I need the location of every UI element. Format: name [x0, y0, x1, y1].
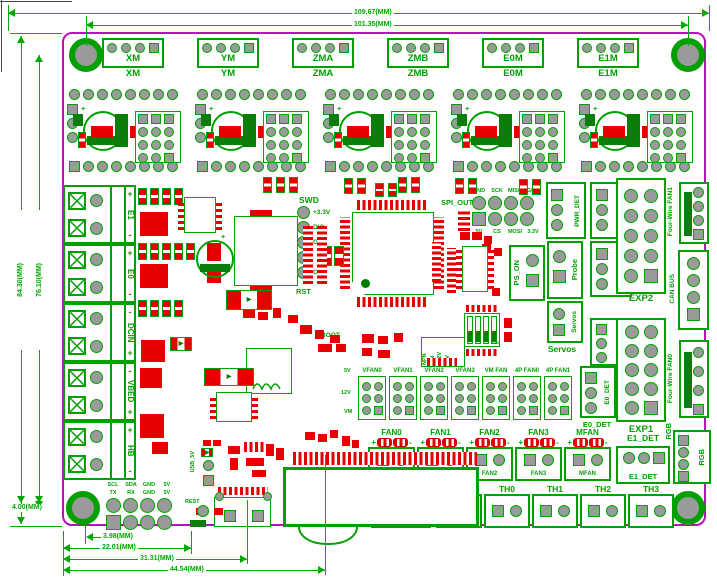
component — [150, 243, 159, 260]
jumper-label: VFAN1 — [389, 366, 417, 376]
pin-pad-round — [535, 140, 545, 150]
pin-pad-square — [164, 114, 174, 124]
motor-connector: ZMA ZMA — [292, 38, 354, 79]
pin-pad-round — [230, 43, 240, 53]
pin-pad-square — [292, 153, 302, 163]
motor-pins — [107, 43, 159, 53]
micro-usb-pins — [218, 487, 268, 495]
pin-pad-round — [665, 89, 676, 100]
pin-pad-square — [585, 372, 597, 384]
pin-pad-round — [394, 127, 404, 137]
rgb-label: RGB — [665, 423, 673, 440]
pin-pad-round — [526, 254, 539, 267]
pin-pad-round — [537, 89, 548, 100]
pin-pad-round — [453, 89, 464, 100]
pin-pad-square — [197, 161, 208, 172]
component — [252, 510, 264, 522]
pin-pad-square — [420, 153, 430, 163]
component — [197, 89, 306, 100]
dim-arrow — [35, 55, 43, 62]
header-pin-label: RX — [122, 489, 140, 497]
pin-pad-square — [687, 308, 700, 321]
component — [174, 300, 183, 317]
motor-connector: ZMB ZMB — [387, 38, 449, 79]
pin-pad-square — [596, 248, 608, 260]
e1-det-label-inner: E1_DET — [618, 473, 668, 481]
pin-pad-round — [548, 394, 557, 403]
pin-pad-square — [560, 406, 569, 415]
component — [427, 358, 457, 366]
pin-pad-round — [542, 454, 554, 466]
component — [352, 440, 359, 448]
component — [69, 89, 178, 100]
jumper-label: VFAN0 — [358, 366, 386, 376]
fan-voltage-jumpers: VFAN0 VFAN1 VFAN2 VFAN3 — [358, 366, 572, 420]
pin-pad-round — [139, 89, 150, 100]
pin-pad-round — [581, 89, 592, 100]
pin-pad-round — [644, 382, 658, 396]
pin-pad-round — [111, 89, 122, 100]
component — [585, 114, 595, 126]
component — [140, 368, 162, 388]
component — [378, 336, 388, 344]
power-terminal-column: + E1 - + — [63, 185, 136, 480]
i2c-uart-pins — [106, 498, 172, 530]
fan-connector: FAN3 — [515, 447, 562, 481]
pin-pad-round — [323, 132, 334, 143]
pin-pad-round — [596, 219, 608, 231]
screw-terminal-icon — [68, 192, 86, 210]
thermistor-connector: TH2 — [580, 484, 626, 528]
mounting-hole-bottom-left — [66, 491, 100, 525]
terminal-label: - VBED + — [126, 364, 134, 419]
component: + — [81, 105, 85, 113]
jumper-block: VFAN3 — [451, 366, 479, 420]
motor-pins — [487, 43, 539, 53]
pin-pad-round — [596, 338, 607, 349]
fuse-icon — [573, 438, 588, 447]
terminal-pad — [90, 458, 103, 471]
pin-pad-round — [362, 406, 371, 415]
e1-det-connector: E1_DET — [616, 446, 670, 484]
jumper-pins-outline — [389, 376, 417, 420]
pin-pad-round — [651, 89, 662, 100]
pin-pad-square — [693, 229, 704, 240]
pin-pad-round — [678, 459, 689, 470]
jumper-block: VFAN0 — [358, 366, 386, 420]
pin-pad-round — [325, 43, 335, 53]
pin-pad-round — [529, 382, 538, 391]
pin-pad-round — [650, 140, 660, 150]
pin-pad-round — [140, 515, 155, 530]
fuse-icon — [524, 438, 539, 447]
pin-pad-square — [650, 114, 660, 124]
component — [334, 132, 342, 148]
component — [398, 177, 407, 193]
pin-pad-round — [595, 89, 606, 100]
motor-label-outer: ZMA — [313, 68, 334, 79]
pin-pad-round — [551, 219, 563, 231]
fan-label-inner: FAN2 — [482, 471, 497, 478]
pin-pad-round — [279, 153, 289, 163]
pin-pad-round — [609, 89, 620, 100]
header-pin-label: 5V — [158, 481, 176, 489]
screw-terminal-icon — [68, 337, 86, 355]
pin-pad-round — [517, 394, 526, 403]
e1-det-pins — [623, 452, 665, 464]
pin-pad-square — [540, 505, 552, 517]
dim-width-inner: 101.35(MM) — [352, 21, 394, 29]
pin-pad-round — [585, 387, 597, 399]
component — [252, 470, 266, 477]
component — [219, 126, 241, 138]
pin-pad-round — [606, 505, 618, 517]
pin-pad-round — [339, 89, 350, 100]
screw-terminal-block: + E0 - — [63, 244, 136, 303]
stepper-driver-sockets: +++++ — [66, 88, 694, 173]
component — [504, 332, 512, 342]
dip-on-label: ON — [492, 341, 499, 346]
pin-pad-square — [573, 454, 585, 466]
jumper-block: VFAN2 — [420, 366, 448, 420]
pin-pad-round — [436, 394, 445, 403]
component — [138, 188, 147, 205]
pin-pad-square — [548, 114, 558, 124]
screw-terminal-screws — [65, 364, 110, 419]
component — [342, 436, 350, 446]
spi-pin-label: CS — [488, 228, 506, 236]
component — [581, 89, 690, 100]
pin-pad-round — [195, 132, 206, 143]
pin-pad-round — [297, 43, 307, 53]
thermistor-connector: TH1 — [532, 484, 578, 528]
pin-pad-round — [83, 161, 94, 172]
thermistor-pins — [588, 505, 618, 517]
terminal-pad — [90, 371, 103, 384]
fan-plus-sign: + — [567, 438, 572, 447]
pin-pad-round — [510, 505, 522, 517]
exp1-header — [616, 318, 666, 422]
screw-terminal-icon — [68, 219, 86, 237]
pin-pad-round — [151, 140, 161, 150]
component — [532, 179, 541, 195]
four-wire-fan0-connector — [679, 340, 709, 418]
pin-pad-round — [266, 127, 276, 137]
component — [263, 177, 272, 193]
usb-b-pins — [293, 452, 477, 465]
pin-pad-square — [436, 406, 445, 415]
spi-out-pins — [472, 196, 534, 226]
component — [186, 243, 195, 260]
pin-pad-round — [424, 406, 433, 415]
pin-pad-round — [407, 140, 417, 150]
pin-pad-round — [596, 263, 608, 275]
probe-label: Probe — [571, 259, 579, 280]
pin-pad-round — [644, 209, 658, 223]
component — [468, 178, 477, 194]
pin-pad-round — [157, 515, 172, 530]
pin-pad-round — [167, 89, 178, 100]
jumper-pins — [393, 382, 414, 415]
component — [115, 114, 128, 147]
pin-pad-round — [551, 89, 562, 100]
pin-pad-round — [623, 161, 634, 172]
pin-pad-square — [434, 43, 444, 53]
pin-pad-round — [362, 382, 371, 391]
fan-minus-sign: - — [507, 438, 510, 447]
motor-connector-outline: E0M — [482, 38, 544, 68]
pin-pad-round — [560, 394, 569, 403]
component — [226, 290, 272, 310]
pin-pad-round — [623, 89, 634, 100]
component — [472, 232, 482, 240]
jumper-pins — [517, 382, 538, 415]
thermistor-connector: TH3 — [628, 484, 674, 528]
pin-pad-round — [625, 363, 639, 377]
jumper-label: VFAN3 — [451, 366, 479, 376]
jumper-pins-outline — [420, 376, 448, 420]
component — [317, 226, 327, 284]
pin-pad-round — [501, 43, 511, 53]
stepper-driver-socket: + — [66, 88, 182, 173]
pin-pad-round — [140, 498, 155, 513]
motor-connector: XM XM — [102, 38, 164, 79]
pin-pad-round — [596, 204, 608, 216]
swd-pin-label: +3.3V — [313, 209, 330, 216]
pin-pad-round — [135, 43, 145, 53]
component — [362, 334, 374, 343]
pin-pad-round — [381, 89, 392, 100]
rgb-connector: RGB — [673, 430, 711, 484]
diode-icon — [201, 448, 213, 457]
terminal-pad — [90, 340, 103, 353]
dim-arrow — [63, 544, 70, 552]
component — [318, 434, 327, 442]
pin-pad-round — [488, 212, 502, 226]
pin-pad-square — [535, 114, 545, 124]
screw-terminal-icon — [68, 428, 86, 446]
pin-pad-round — [498, 382, 507, 391]
terminal-divider — [110, 246, 126, 301]
thermistor-label: TH2 — [580, 484, 626, 494]
pin-pad-round — [253, 89, 264, 100]
pin-pad-square — [663, 114, 673, 124]
terminal-divider — [110, 305, 126, 360]
pin-pad-round — [481, 161, 492, 172]
terminal-sign-bottom: - — [129, 466, 132, 476]
component — [258, 312, 268, 320]
dim-3-98: 3.98(MM) — [101, 533, 135, 541]
spi-pin-label: SCK — [488, 187, 506, 195]
mcu-pins-top — [357, 200, 427, 210]
pin-pad-round — [644, 363, 658, 377]
component — [522, 114, 558, 163]
pin-pad-round — [420, 127, 430, 137]
probe-pins — [553, 250, 566, 283]
pin-pad-round — [157, 498, 172, 513]
pin-pad-square — [588, 505, 600, 517]
pin-pad-round — [693, 201, 704, 212]
pin-pad-round — [676, 127, 686, 137]
pin-pad-round — [279, 140, 289, 150]
ps-on-pins — [526, 254, 539, 287]
component — [411, 177, 420, 193]
stepper-driver-socket: + — [578, 88, 694, 173]
pin-pad-round — [486, 382, 495, 391]
pin-pad-round — [529, 394, 538, 403]
component — [325, 89, 434, 100]
pin-pad-round — [266, 153, 276, 163]
four-wire-fan0-pins — [693, 347, 704, 415]
pin-pad-round — [164, 127, 174, 137]
component — [243, 114, 256, 147]
pin-pad-round — [548, 382, 557, 391]
pin-pad-round — [106, 498, 121, 513]
pin-pad-round — [623, 452, 635, 464]
component — [344, 178, 353, 194]
four-wire-fan1-pins — [693, 187, 704, 240]
terminal-name: DCIN — [126, 323, 134, 343]
component — [457, 114, 467, 126]
e1-det-label: E1_DET — [620, 434, 666, 443]
header-pin-label: GND — [140, 489, 158, 497]
component — [243, 310, 255, 318]
dim-height-inner: 76.10(MM) — [36, 263, 43, 297]
pin-pad-round — [596, 278, 608, 290]
terminal-pad — [90, 281, 103, 294]
pin-pad-square — [644, 401, 658, 415]
fan-label: FAN2 — [466, 428, 513, 437]
pin-pad-round — [693, 187, 704, 198]
pin-pad-round — [644, 249, 658, 263]
pin-pad-round — [138, 127, 148, 137]
pin-pad-square — [548, 153, 558, 163]
pin-pad-round — [467, 394, 476, 403]
pin-pad-square — [524, 454, 536, 466]
component — [135, 111, 181, 163]
component — [190, 520, 206, 527]
pin-pad-round — [595, 161, 606, 172]
pin-pad-round — [216, 43, 226, 53]
pin-pad-round — [523, 89, 534, 100]
e0-det-label: E0_DET — [605, 380, 612, 405]
pin-pad-square — [553, 324, 565, 336]
component — [289, 177, 298, 193]
pin-pad-square — [164, 153, 174, 163]
thermistor-outline — [580, 494, 626, 528]
thermistor-pins — [540, 505, 570, 517]
origin-axis-vertical — [1, 0, 2, 72]
pin-pad-round — [455, 394, 464, 403]
component — [303, 226, 313, 284]
component — [215, 492, 224, 501]
terminal-divider — [110, 364, 126, 419]
component — [214, 508, 223, 515]
pin-pad-square — [203, 475, 214, 486]
fan-minus-sign: - — [458, 438, 461, 447]
pin-pad-round — [266, 140, 276, 150]
pin-pad-round — [509, 89, 520, 100]
motor-label-inner: E1M — [598, 53, 618, 64]
jumper-pins — [548, 382, 569, 415]
pin-pad-square — [325, 161, 336, 172]
spi-pin-label: 3.3V — [524, 228, 542, 236]
pin-pad-round — [455, 382, 464, 391]
fan-label: MFAN — [564, 428, 611, 437]
component — [213, 440, 221, 446]
servos-label: Servos — [572, 311, 579, 333]
component — [184, 197, 216, 233]
spi-pin-label: MOSI — [506, 228, 524, 236]
pin-pad-square — [279, 114, 289, 124]
servos-pins — [553, 308, 565, 336]
pin-pad-square — [676, 153, 686, 163]
header-pin-label: TX — [104, 489, 122, 497]
pin-pad-round — [239, 161, 250, 172]
pin-pad-round — [693, 366, 704, 377]
jumper-pins-outline — [482, 376, 510, 420]
screw-terminal-icon — [68, 310, 86, 328]
pin-pad-square — [498, 406, 507, 415]
screw-terminal-screws — [65, 187, 110, 242]
screw-terminal-icon — [68, 278, 86, 296]
fuse-icon — [540, 438, 555, 447]
terminal-pad — [90, 312, 103, 325]
pin-pad-round — [663, 140, 673, 150]
pin-pad-round — [394, 153, 404, 163]
pin-pad-round — [679, 89, 690, 100]
pin-pad-square — [266, 114, 276, 124]
component — [91, 126, 113, 138]
component — [394, 333, 403, 342]
pin-pad-round — [582, 43, 592, 53]
fuse-icon — [589, 438, 604, 447]
uart-header-labels: TXRXGND5V — [104, 489, 176, 497]
pin-pad-round — [624, 189, 638, 203]
four-wire-fan1-label: Four-Wire FAN1 — [668, 187, 675, 236]
jumper-block: VM FAN — [482, 366, 510, 420]
pin-pad-round — [311, 43, 321, 53]
pin-pad-round — [467, 382, 476, 391]
component — [138, 114, 174, 163]
component — [276, 177, 285, 193]
fan-fuse: + - — [466, 437, 513, 447]
pin-pad-round — [650, 127, 660, 137]
jumper-row-mark-5v: 5V — [344, 369, 351, 375]
y-stop-pins — [596, 248, 608, 290]
pin-pad-round — [644, 229, 658, 243]
component — [466, 305, 498, 312]
motor-connector-outline: ZMA — [292, 38, 354, 68]
pwr-det-label: PWR_DET — [575, 195, 582, 227]
pin-pad-round — [625, 325, 639, 339]
pin-pad-round — [295, 89, 306, 100]
pin-pad-round — [211, 89, 222, 100]
screw-terminal-block: - VBED + — [63, 362, 136, 421]
fan-minus-sign: - — [409, 438, 412, 447]
component — [447, 248, 456, 293]
dim-arrow — [681, 21, 688, 29]
mounting-hole-bottom-right — [671, 491, 705, 525]
screw-terminal-icon — [68, 455, 86, 473]
pin-pad-round — [395, 89, 406, 100]
thermistor-label: TH3 — [628, 484, 674, 494]
dim-arrow — [63, 566, 70, 574]
pin-pad-round — [687, 257, 700, 270]
pin-pad-round — [97, 89, 108, 100]
motor-label-inner: XM — [126, 53, 140, 64]
pin-pad-round — [495, 89, 506, 100]
